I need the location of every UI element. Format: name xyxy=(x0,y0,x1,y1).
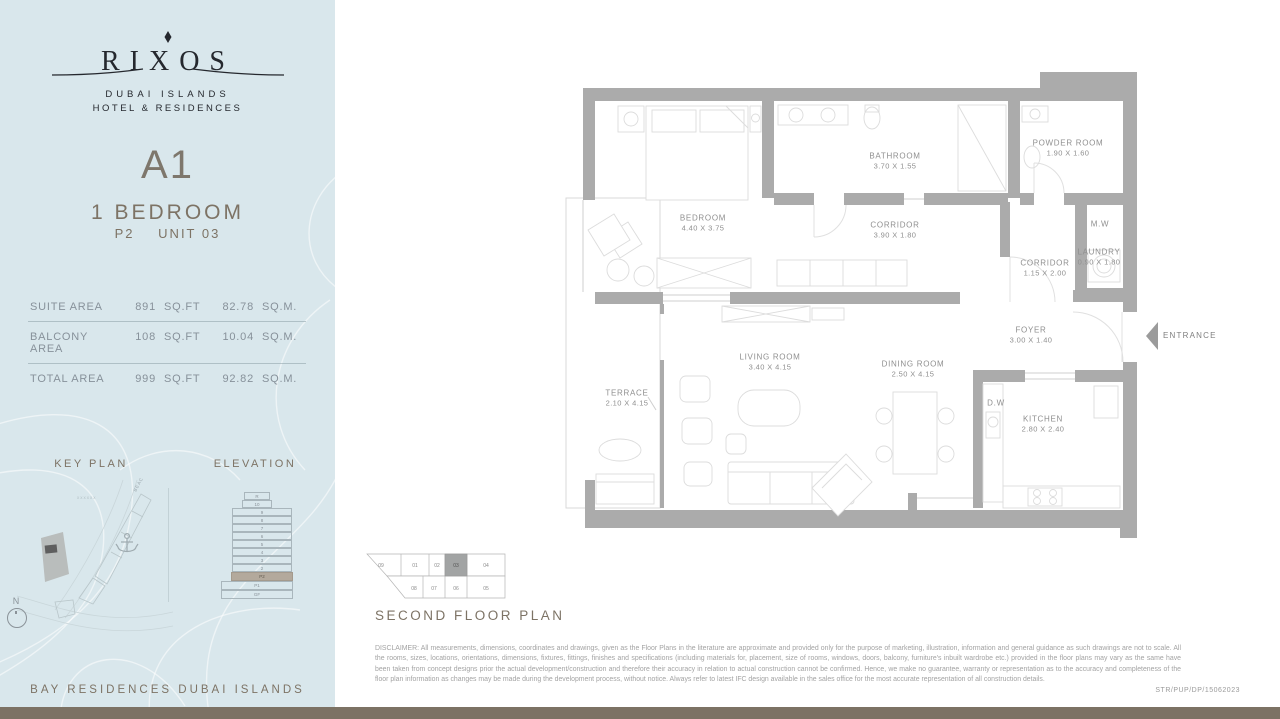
brand-name: RIXOS xyxy=(100,46,234,77)
brand-division: HOTEL & RESIDENCES xyxy=(0,103,335,114)
table-row: BALCONY AREA 108 SQ.FT 10.04 SQ.M. xyxy=(28,322,306,364)
compass-north-label: N xyxy=(6,596,26,606)
elevation-title: ELEVATION xyxy=(205,458,305,470)
area-sqm-value: 82.78 xyxy=(208,301,254,313)
crown-icon xyxy=(164,31,171,43)
elevation-floor: 5 xyxy=(232,540,292,548)
room-label-bathroom: BATHROOM 3.70 X 1.55 xyxy=(869,152,920,171)
room-dims: 3.00 X 1.40 xyxy=(1010,336,1053,345)
room-name: LIVING ROOM xyxy=(739,353,800,362)
elevation-floor: 8 xyxy=(232,516,292,524)
compass-needle xyxy=(15,611,17,614)
brand-location: DUBAI ISLANDS xyxy=(0,89,335,100)
room-label-corridor-1: CORRIDOR 3.90 X 1.80 xyxy=(870,221,919,240)
dining-furniture xyxy=(876,392,954,474)
unit-cell-03-label[interactable]: 03 xyxy=(453,563,459,569)
room-name: KITCHEN xyxy=(1022,415,1065,424)
elevation-floor: 4 xyxy=(232,548,292,556)
document-reference: STR/PUP/DP/15062023 xyxy=(1040,687,1240,694)
room-label-powder-room: POWDER ROOM 1.90 X 1.60 xyxy=(1033,139,1104,158)
room-name: D.W xyxy=(987,399,1005,408)
room-label-dining-room: DINING ROOM 2.50 X 4.15 xyxy=(882,360,945,379)
sqft-unit: SQ.FT xyxy=(156,301,208,313)
elevation-floor: 7 xyxy=(232,524,292,532)
unit-code: A1 xyxy=(0,143,335,188)
plot-strip xyxy=(95,494,151,584)
unit-cell-01[interactable]: 01 xyxy=(412,563,418,569)
area-sqft-value: 891 xyxy=(114,301,156,313)
unit-cell-08[interactable]: 08 xyxy=(411,586,417,592)
unit-level: P2 xyxy=(115,226,135,241)
room-label-dw: D.W xyxy=(987,399,1005,408)
room-dims: 3.90 X 1.80 xyxy=(870,231,919,240)
area-sqm-value: 92.82 xyxy=(208,373,254,385)
bottom-accent-bar xyxy=(0,707,1280,719)
room-dims: 2.50 X 4.15 xyxy=(882,370,945,379)
unit-cell-02[interactable]: 02 xyxy=(434,563,440,569)
area-label: SUITE AREA xyxy=(30,301,114,313)
powder-room-fixtures xyxy=(1022,106,1048,168)
brochure-page: RIXOS DUBAI ISLANDS HOTEL & RESIDENCES A… xyxy=(0,0,1280,719)
anchor-icon xyxy=(116,534,138,552)
compass-icon xyxy=(7,608,27,628)
entrance-label: ENTRANCE xyxy=(1163,331,1217,340)
room-dims: 1.90 X 1.60 xyxy=(1033,149,1104,158)
room-label-foyer: FOYER 3.00 X 1.40 xyxy=(1010,326,1053,345)
area-sqm-value: 10.04 xyxy=(208,331,254,343)
unit-cell-09[interactable]: 09 xyxy=(378,563,384,569)
room-name: BEDROOM xyxy=(680,214,726,223)
room-name: DINING ROOM xyxy=(882,360,945,369)
room-label-bedroom: BEDROOM 4.40 X 3.75 xyxy=(680,214,726,233)
room-name: CORRIDOR xyxy=(1020,259,1069,268)
elevation-floor: 6 xyxy=(232,532,292,540)
road-label: BEACH VILLAS xyxy=(132,478,156,492)
room-dims: 3.40 X 4.15 xyxy=(739,363,800,372)
area-label: BALCONY AREA xyxy=(30,331,114,355)
sqm-unit: SQ.M. xyxy=(254,373,304,385)
disclaimer-text: DISCLAIMER: All measurements, dimensions… xyxy=(375,644,1181,685)
road-line xyxy=(17,596,173,618)
room-dims: 1.15 X 2.00 xyxy=(1020,269,1069,278)
corridor-wardrobe xyxy=(777,260,907,286)
bathroom-fixtures xyxy=(778,105,1006,191)
unit-location: P2 UNIT 03 xyxy=(0,226,335,241)
room-label-laundry: LAUNDRY 0.90 X 1.80 xyxy=(1078,248,1121,267)
elevation-floor: GF xyxy=(221,590,293,599)
room-name: FOYER xyxy=(1010,326,1053,335)
room-label-living-room: LIVING ROOM 3.40 X 4.15 xyxy=(739,353,800,372)
room-label-kitchen: KITCHEN 2.80 X 2.40 xyxy=(1022,415,1065,434)
room-name: LAUNDRY xyxy=(1078,248,1121,257)
bedroom-furniture xyxy=(606,106,761,288)
elevation-floor: 9 xyxy=(232,508,292,516)
terrace-tick xyxy=(648,397,656,410)
entrance-arrow-icon xyxy=(1146,322,1158,350)
unit-marker xyxy=(45,544,58,553)
road-line xyxy=(17,610,173,631)
sqft-unit: SQ.FT xyxy=(156,331,208,343)
area-sqft-value: 108 xyxy=(114,331,156,343)
table-row: SUITE AREA 891 SQ.FT 82.78 SQ.M. xyxy=(28,292,306,322)
room-dims: 3.70 X 1.55 xyxy=(869,162,920,171)
room-name: CORRIDOR xyxy=(870,221,919,230)
rixos-logo-mark: RIXOS xyxy=(48,30,288,82)
unit-cell-06[interactable]: 06 xyxy=(453,586,459,592)
unit-selector-mini-plan: 09 01 02 03 04 08 07 06 05 xyxy=(357,546,509,602)
floor-plan-title: SECOND FLOOR PLAN xyxy=(375,608,565,623)
sqft-unit: SQ.FT xyxy=(156,373,208,385)
unit-number: UNIT 03 xyxy=(158,226,220,241)
living-room-furniture xyxy=(680,306,872,516)
room-name: M.W xyxy=(1091,220,1110,229)
table-row: TOTAL AREA 999 SQ.FT 92.82 SQ.M. xyxy=(28,364,306,393)
room-dims: 0.90 X 1.80 xyxy=(1078,258,1121,267)
terrace-furniture xyxy=(588,214,656,504)
unit-cell-04[interactable]: 04 xyxy=(483,563,489,569)
room-label-corridor-2: CORRIDOR 1.15 X 2.00 xyxy=(1020,259,1069,278)
elevation-floor: 2 xyxy=(232,564,292,572)
area-label: TOTAL AREA xyxy=(30,373,114,385)
sidebar: RIXOS DUBAI ISLANDS HOTEL & RESIDENCES A… xyxy=(0,0,335,707)
key-plan-title: KEY PLAN xyxy=(36,458,146,470)
plot-small xyxy=(79,578,105,604)
room-label-terrace: TERRACE 2.10 X 4.15 xyxy=(605,389,648,408)
elevation-floor: P1 xyxy=(221,581,293,590)
floor-plan-drawing xyxy=(560,60,1200,550)
elevation-floor: 10 xyxy=(242,500,272,508)
project-name: BAY RESIDENCES DUBAI ISLANDS xyxy=(0,684,335,696)
sqm-unit: SQ.M. xyxy=(254,301,304,313)
key-plan-map: xxxxxx BEACH VILLAS xyxy=(15,478,175,643)
room-name: BATHROOM xyxy=(869,152,920,161)
room-dims: 2.80 X 2.40 xyxy=(1022,425,1065,434)
hatch-marks: xxxxxx xyxy=(77,495,97,500)
elevation-floor-highlighted: P2 xyxy=(231,572,293,581)
unit-type: 1 BEDROOM xyxy=(0,201,335,225)
highlighted-building-footprint xyxy=(41,532,69,582)
unit-cell-07[interactable]: 07 xyxy=(431,586,437,592)
room-dims: 4.40 X 3.75 xyxy=(680,224,726,233)
elevation-floor: R xyxy=(244,492,270,500)
room-dims: 2.10 X 4.15 xyxy=(605,399,648,408)
elevation-floor: 3 xyxy=(232,556,292,564)
road-line xyxy=(65,480,137,618)
room-label-mw: M.W xyxy=(1091,220,1110,229)
area-table: SUITE AREA 891 SQ.FT 82.78 SQ.M. BALCONY… xyxy=(28,292,306,393)
room-name: TERRACE xyxy=(605,389,648,398)
room-name: POWDER ROOM xyxy=(1033,139,1104,148)
unit-cell-05[interactable]: 05 xyxy=(483,586,489,592)
area-sqft-value: 999 xyxy=(114,373,156,385)
brand-logo: RIXOS DUBAI ISLANDS HOTEL & RESIDENCES xyxy=(0,30,335,114)
sqm-unit: SQ.M. xyxy=(254,331,304,343)
